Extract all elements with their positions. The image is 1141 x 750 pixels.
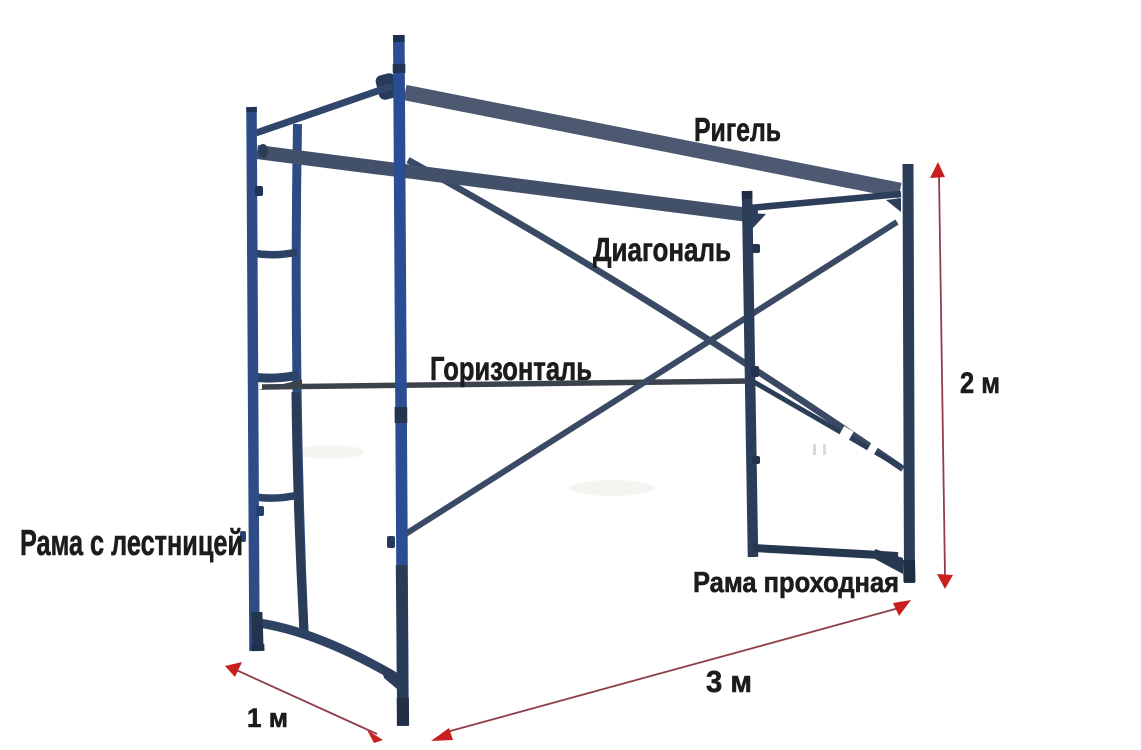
svg-text:Ригель: Ригель <box>694 111 781 148</box>
svg-text:Диагональ: Диагональ <box>593 231 731 268</box>
svg-text:3 м: 3 м <box>706 664 752 699</box>
svg-text:Рама с лестницей: Рама с лестницей <box>20 522 243 563</box>
svg-text:1 м: 1 м <box>247 703 288 733</box>
svg-text:Рама проходная: Рама проходная <box>693 567 899 599</box>
svg-text:Горизонталь: Горизонталь <box>430 350 592 387</box>
svg-text:2 м: 2 м <box>960 367 1000 400</box>
